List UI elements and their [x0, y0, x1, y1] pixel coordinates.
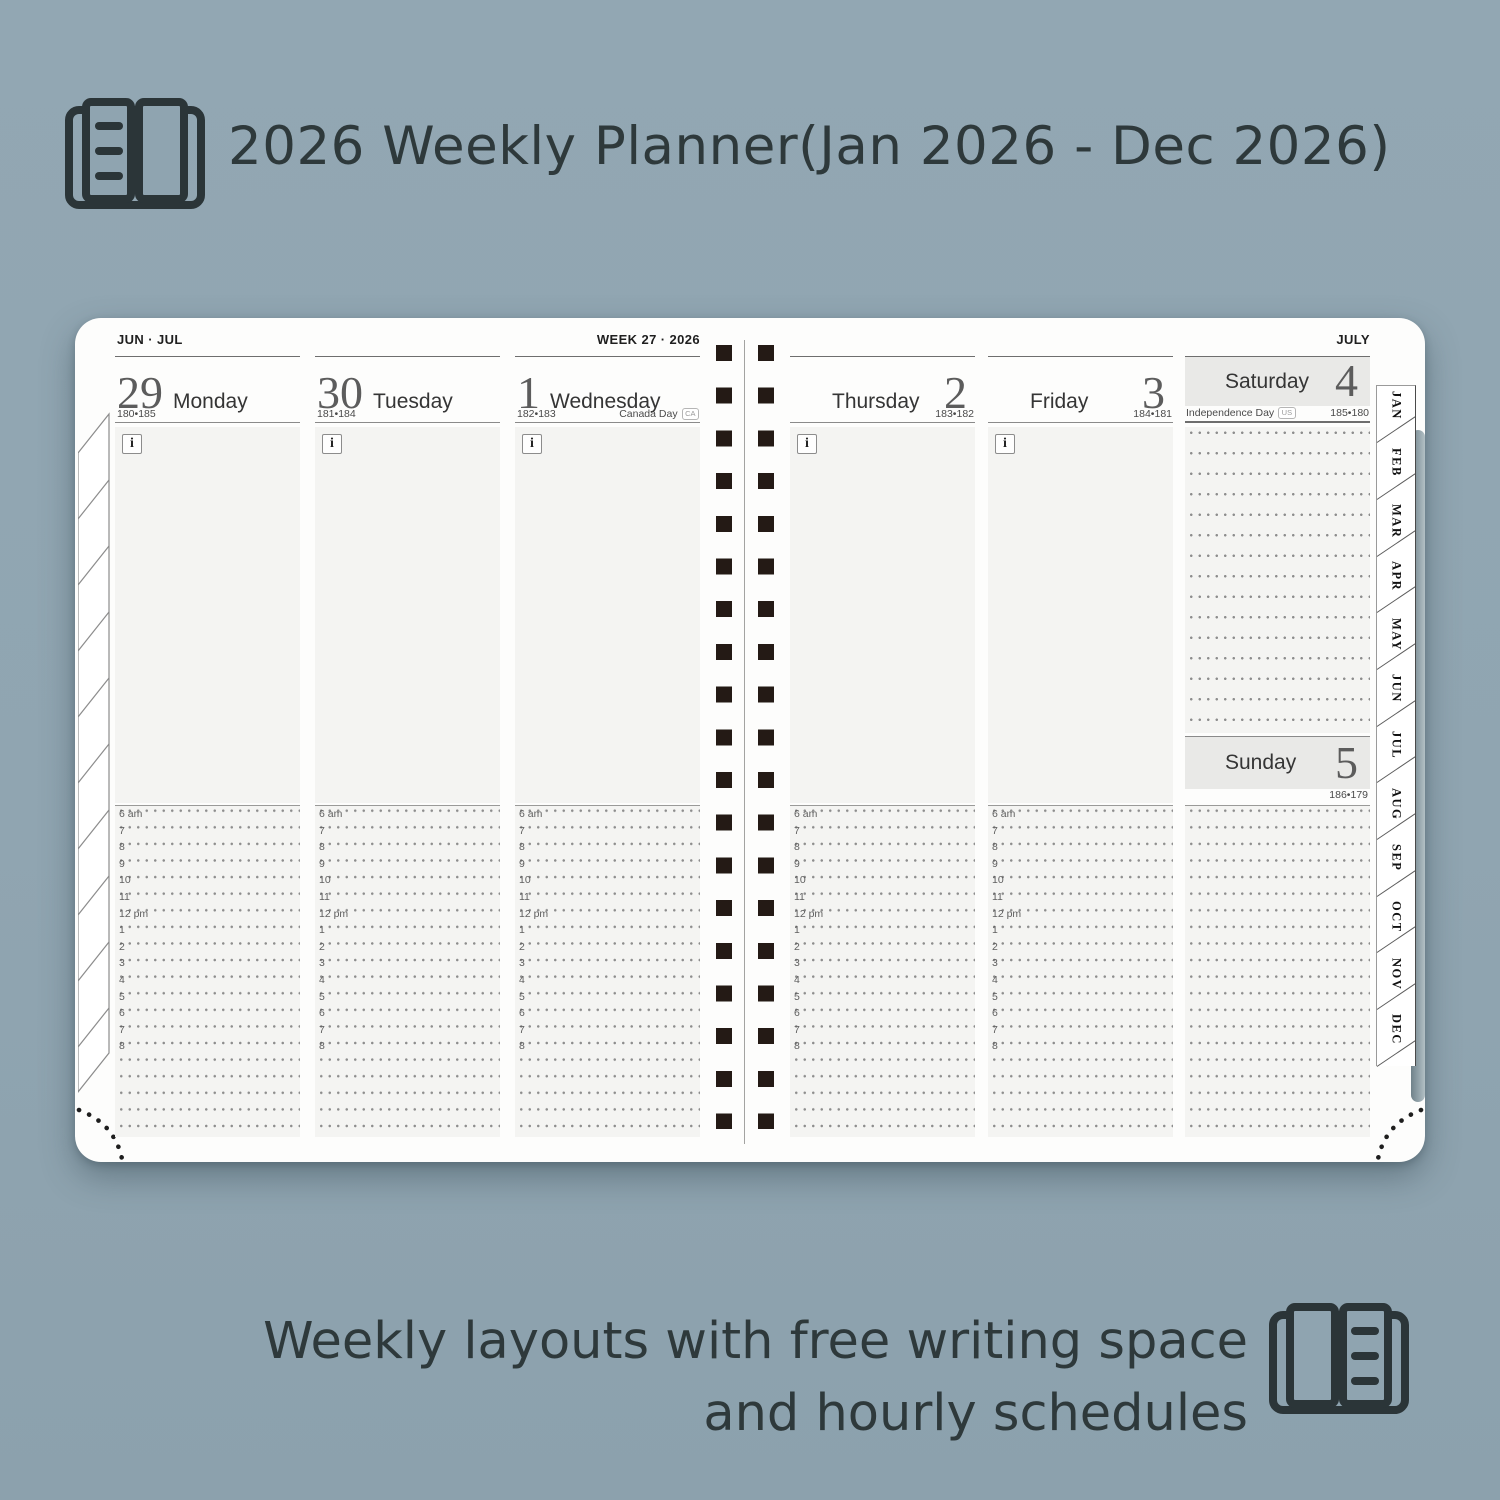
- page-gutter-line: [744, 340, 745, 1144]
- hour-label: 10: [988, 872, 1173, 886]
- hour-row: 8: [515, 1038, 700, 1055]
- hour-label: 11: [988, 889, 1173, 903]
- day-column-tuesday: 30 Tuesday 181•184 i 6 am 7 8 9 10 11 12…: [315, 356, 500, 1137]
- hour-row: 2: [115, 939, 300, 956]
- hour-row: 10: [115, 872, 300, 889]
- hour-label: 11: [515, 889, 700, 903]
- hour-label: 6: [115, 1005, 300, 1019]
- hour-row: 6: [315, 1005, 500, 1022]
- day-name: Saturday: [1225, 370, 1309, 394]
- hour-label: 12 pm: [988, 906, 1173, 920]
- hour-label: 10: [315, 872, 500, 886]
- month-tab: FEB: [1377, 443, 1415, 500]
- free-writing-area: i: [315, 427, 500, 803]
- hour-label: 2: [315, 939, 500, 953]
- month-tab: OCT: [1377, 896, 1415, 953]
- sunday-dotted-notes: [1185, 805, 1370, 1137]
- info-icon: i: [122, 434, 142, 454]
- hour-row: 7: [515, 823, 700, 840]
- hour-row: 5: [515, 989, 700, 1006]
- hour-row: 8: [315, 839, 500, 856]
- hour-label: 8: [115, 839, 300, 853]
- hour-row: 4: [515, 972, 700, 989]
- hour-row: 7: [790, 1022, 975, 1039]
- month-tab-label: MAY: [1389, 618, 1404, 651]
- hour-label: 11: [790, 889, 975, 903]
- hour-label: 1: [515, 922, 700, 936]
- month-tab: JAN: [1377, 386, 1415, 443]
- hour-label: 6 am: [315, 806, 500, 820]
- hour-label: 7: [515, 1022, 700, 1036]
- hour-label: 7: [315, 1022, 500, 1036]
- hour-label: 7: [988, 823, 1173, 837]
- hour-row: 7: [988, 823, 1173, 840]
- hour-label: 11: [115, 889, 300, 903]
- hour-row: 11: [515, 889, 700, 906]
- day-of-year: 185•180: [1330, 407, 1369, 419]
- hour-label: 4: [515, 972, 700, 986]
- hour-row: 6 am: [115, 806, 300, 823]
- product-image: { "header": { "title": "2026 Weekly Plan…: [0, 0, 1500, 1500]
- hour-row: 1: [315, 922, 500, 939]
- hour-label: 12 pm: [790, 906, 975, 920]
- day-column-weekend: Saturday 4 Independence Day US 185•180 S…: [1185, 356, 1370, 1137]
- hour-label: 9: [115, 856, 300, 870]
- hour-label: 8: [115, 1038, 300, 1052]
- day-header: Thursday 2: [790, 357, 975, 407]
- day-column-thursday: Thursday 2 183•182 i 6 am 7 8 9 10 11 12…: [790, 356, 975, 1137]
- month-tab-label: SEP: [1389, 844, 1404, 871]
- hour-label: 5: [115, 989, 300, 1003]
- hour-label: 8: [515, 1038, 700, 1052]
- month-tab-label: JUL: [1389, 731, 1404, 759]
- hour-label: 12 pm: [515, 906, 700, 920]
- day-column-monday: 29 Monday 180•185 i 6 am 7 8 9 10 11 12 …: [115, 356, 300, 1137]
- holiday-label: Independence Day US: [1186, 407, 1296, 420]
- hour-label: 5: [315, 989, 500, 1003]
- month-tab: MAR: [1377, 499, 1415, 556]
- hour-label: 2: [115, 939, 300, 953]
- day-header: 30 Tuesday: [315, 357, 500, 407]
- hour-label: 9: [315, 856, 500, 870]
- hour-label: 2: [515, 939, 700, 953]
- holiday-country-badge: CA: [682, 408, 699, 421]
- hour-label: 1: [115, 922, 300, 936]
- day-of-year-row: 182•183 Canada Day CA: [515, 407, 700, 423]
- hourly-schedule: 6 am 7 8 9 10 11 12 pm 1 2 3 4 5: [315, 805, 500, 1137]
- day-of-year-row: 183•182: [790, 407, 975, 423]
- hour-row: 7: [515, 1022, 700, 1039]
- day-name: Sunday: [1225, 751, 1296, 775]
- month-tab-index: JAN FEB MAR APR MAY JUN JUL AUG SEP OCT …: [1376, 385, 1416, 1066]
- hour-row: 9: [315, 856, 500, 873]
- day-header: 29 Monday: [115, 357, 300, 407]
- hour-label: 12 pm: [315, 906, 500, 920]
- hour-label: 5: [790, 989, 975, 1003]
- hour-label: 9: [988, 856, 1173, 870]
- day-of-year: 180•185: [117, 408, 156, 420]
- info-icon: i: [322, 434, 342, 454]
- hour-row: 1: [790, 922, 975, 939]
- hour-label: 6: [790, 1005, 975, 1019]
- hour-label: 10: [115, 872, 300, 886]
- hour-label: 6 am: [515, 806, 700, 820]
- month-tab: SEP: [1377, 839, 1415, 896]
- month-tab-label: FEB: [1389, 448, 1404, 477]
- day-number: 5: [1335, 747, 1358, 779]
- hour-label: 3: [315, 955, 500, 969]
- hour-row: 8: [988, 839, 1173, 856]
- month-tab-label: OCT: [1389, 901, 1404, 933]
- hour-label: 9: [790, 856, 975, 870]
- hour-label: 8: [515, 839, 700, 853]
- day-number: 30: [317, 377, 363, 409]
- hourly-schedule: 6 am 7 8 9 10 11 12 pm 1 2 3 4 5: [115, 805, 300, 1137]
- hour-row: 7: [115, 1022, 300, 1039]
- hour-row: 2: [515, 939, 700, 956]
- month-tab-label: NOV: [1389, 958, 1404, 990]
- hour-row: 2: [790, 939, 975, 956]
- hour-label: 3: [988, 955, 1173, 969]
- hour-row: 7: [988, 1022, 1173, 1039]
- day-of-year-row: 181•184: [315, 407, 500, 423]
- hour-label: 8: [315, 839, 500, 853]
- hour-label: 6 am: [790, 806, 975, 820]
- hour-label: 4: [115, 972, 300, 986]
- hour-row: 12 pm: [515, 906, 700, 923]
- hour-label: 3: [790, 955, 975, 969]
- hour-label: 7: [115, 823, 300, 837]
- page-edge-hatching: [78, 405, 110, 1095]
- hour-label: 1: [988, 922, 1173, 936]
- day-number: 29: [117, 377, 163, 409]
- day-column-wednesday: 1 Wednesday 182•183 Canada Day CA i 6 am…: [515, 356, 700, 1137]
- hour-row: 8: [790, 839, 975, 856]
- hour-row: 6 am: [515, 806, 700, 823]
- hour-label: 7: [115, 1022, 300, 1036]
- month-tab: AUG: [1377, 783, 1415, 840]
- hour-row: 4: [790, 972, 975, 989]
- hour-row: 10: [790, 872, 975, 889]
- hour-label: 7: [988, 1022, 1173, 1036]
- hourly-schedule: 6 am 7 8 9 10 11 12 pm 1 2 3 4 5: [790, 805, 975, 1137]
- hour-label: 12 pm: [115, 906, 300, 920]
- hour-row: 3: [988, 955, 1173, 972]
- hour-label: 5: [988, 989, 1173, 1003]
- hour-label: 6 am: [988, 806, 1173, 820]
- hour-row: 6 am: [315, 806, 500, 823]
- hour-row: 9: [515, 856, 700, 873]
- hour-row: 9: [790, 856, 975, 873]
- hour-label: 6: [515, 1005, 700, 1019]
- footer-line-1: Weekly layouts with free writing space: [263, 1306, 1248, 1378]
- hour-row: 11: [315, 889, 500, 906]
- hour-row: 3: [790, 955, 975, 972]
- month-tab: NOV: [1377, 953, 1415, 1010]
- hour-row: 8: [515, 839, 700, 856]
- day-of-year: 183•182: [935, 408, 974, 420]
- saturday-header: Saturday 4: [1185, 357, 1370, 406]
- free-writing-area: i: [115, 427, 300, 803]
- month-tab-label: AUG: [1389, 788, 1404, 820]
- month-tab: MAY: [1377, 613, 1415, 670]
- hour-label: 4: [988, 972, 1173, 986]
- hour-label: 1: [790, 922, 975, 936]
- free-writing-area: i: [515, 427, 700, 803]
- hour-row: 5: [790, 989, 975, 1006]
- hour-row: 6: [515, 1005, 700, 1022]
- hour-label: 11: [315, 889, 500, 903]
- hour-row: 1: [115, 922, 300, 939]
- hour-row: 6: [115, 1005, 300, 1022]
- hour-row: 1: [988, 922, 1173, 939]
- day-number: 4: [1335, 365, 1358, 397]
- day-of-year-row: 184•181: [988, 407, 1173, 423]
- hour-label: 8: [988, 839, 1173, 853]
- hour-row: 10: [515, 872, 700, 889]
- day-of-year: 182•183: [517, 408, 556, 420]
- hour-row: 10: [988, 872, 1173, 889]
- hour-label: 5: [515, 989, 700, 1003]
- hour-label: 8: [988, 1038, 1173, 1052]
- info-icon: i: [995, 434, 1015, 454]
- day-of-year: 186•179: [1185, 789, 1370, 803]
- hour-row: 7: [315, 1022, 500, 1039]
- hour-label: 7: [790, 823, 975, 837]
- hour-row: 5: [115, 989, 300, 1006]
- holiday-country-badge: US: [1278, 407, 1295, 420]
- hour-row: 12 pm: [790, 906, 975, 923]
- hour-row: 7: [790, 823, 975, 840]
- day-number: 1: [517, 377, 540, 409]
- holiday-label: Canada Day CA: [619, 408, 699, 421]
- day-header: Friday 3: [988, 357, 1173, 407]
- hour-row: 12 pm: [315, 906, 500, 923]
- saturday-dotted-notes: [1185, 427, 1370, 733]
- footer-line-2: and hourly schedules: [263, 1378, 1248, 1450]
- hour-row: 1: [515, 922, 700, 939]
- month-tab: DEC: [1377, 1009, 1415, 1066]
- hour-row: 2: [315, 939, 500, 956]
- week-number-label: WEEK 27 · 2026: [515, 332, 700, 347]
- hour-row: 5: [315, 989, 500, 1006]
- open-planner-icon: [1266, 1298, 1412, 1416]
- hour-row: 4: [115, 972, 300, 989]
- hour-label: 3: [515, 955, 700, 969]
- hour-row: 8: [315, 1038, 500, 1055]
- hour-label: 9: [515, 856, 700, 870]
- month-tab: JUL: [1377, 726, 1415, 783]
- hour-label: 10: [515, 872, 700, 886]
- day-of-year-row: 180•185: [115, 407, 300, 423]
- footer-caption: Weekly layouts with free writing space a…: [263, 1306, 1248, 1451]
- hour-label: 8: [315, 1038, 500, 1052]
- month-tab-label: JUN: [1389, 674, 1404, 703]
- hour-row: 3: [315, 955, 500, 972]
- day-number: 3: [1142, 377, 1165, 409]
- month-tab-label: DEC: [1389, 1014, 1404, 1045]
- month-tab-label: JAN: [1389, 391, 1404, 420]
- hour-row: 7: [115, 823, 300, 840]
- spiral-binding-left: [716, 345, 732, 1129]
- free-writing-area: i: [790, 427, 975, 803]
- hour-row: 5: [988, 989, 1173, 1006]
- hour-row: 8: [115, 839, 300, 856]
- hour-label: 4: [790, 972, 975, 986]
- hour-label: 2: [790, 939, 975, 953]
- hour-row: 6: [988, 1005, 1173, 1022]
- hour-row: 12 pm: [115, 906, 300, 923]
- day-of-year: 184•181: [1133, 408, 1172, 420]
- hour-label: 4: [315, 972, 500, 986]
- info-icon: i: [797, 434, 817, 454]
- hour-row: 9: [115, 856, 300, 873]
- month-tab-label: MAR: [1389, 504, 1404, 538]
- day-number: 2: [944, 377, 967, 409]
- month-tab: APR: [1377, 556, 1415, 613]
- hour-row: 6 am: [790, 806, 975, 823]
- hour-label: 6: [315, 1005, 500, 1019]
- info-icon: i: [522, 434, 542, 454]
- hour-row: 6 am: [988, 806, 1173, 823]
- hour-row: 3: [515, 955, 700, 972]
- hour-label: 8: [790, 1038, 975, 1052]
- hour-label: 7: [790, 1022, 975, 1036]
- month-tab: JUN: [1377, 669, 1415, 726]
- left-page-month-label: JUN · JUL: [117, 332, 183, 347]
- hour-row: 7: [315, 823, 500, 840]
- hourly-schedule: 6 am 7 8 9 10 11 12 pm 1 2 3 4 5: [515, 805, 700, 1137]
- hour-row: 11: [790, 889, 975, 906]
- open-planner-icon: [62, 93, 208, 211]
- hour-row: 8: [988, 1038, 1173, 1055]
- hour-label: 7: [515, 823, 700, 837]
- sunday-header: Sunday 5: [1185, 736, 1370, 789]
- hour-label: 8: [790, 839, 975, 853]
- day-of-year-row: Independence Day US 185•180: [1185, 406, 1370, 423]
- free-writing-area: i: [988, 427, 1173, 803]
- right-page-month-label: JULY: [1185, 332, 1370, 347]
- spiral-binding-right: [758, 345, 774, 1129]
- hourly-schedule: 6 am 7 8 9 10 11 12 pm 1 2 3 4 5: [988, 805, 1173, 1137]
- hour-row: 8: [790, 1038, 975, 1055]
- day-of-year: 181•184: [317, 408, 356, 420]
- hour-row: 11: [115, 889, 300, 906]
- hour-label: 10: [790, 872, 975, 886]
- day-header: 1 Wednesday: [515, 357, 700, 407]
- hour-row: 9: [988, 856, 1173, 873]
- hour-label: 2: [988, 939, 1173, 953]
- planner-spread: JUN · JUL WEEK 27 · 2026 JULY JAN FEB MA…: [75, 318, 1425, 1162]
- hour-row: 4: [315, 972, 500, 989]
- hour-row: 12 pm: [988, 906, 1173, 923]
- hour-label: 1: [315, 922, 500, 936]
- month-tab-label: APR: [1389, 561, 1404, 591]
- hour-label: 6 am: [115, 806, 300, 820]
- hour-row: 11: [988, 889, 1173, 906]
- hour-label: 6: [988, 1005, 1173, 1019]
- page-title: 2026 Weekly Planner(Jan 2026 - Dec 2026): [228, 116, 1391, 177]
- hour-row: 8: [115, 1038, 300, 1055]
- hour-row: 4: [988, 972, 1173, 989]
- hour-label: 3: [115, 955, 300, 969]
- hour-row: 2: [988, 939, 1173, 956]
- day-column-friday: Friday 3 184•181 i 6 am 7 8 9 10 11 12 p…: [988, 356, 1173, 1137]
- hour-label: 7: [315, 823, 500, 837]
- hour-row: 3: [115, 955, 300, 972]
- hour-row: 10: [315, 872, 500, 889]
- hour-row: 6: [790, 1005, 975, 1022]
